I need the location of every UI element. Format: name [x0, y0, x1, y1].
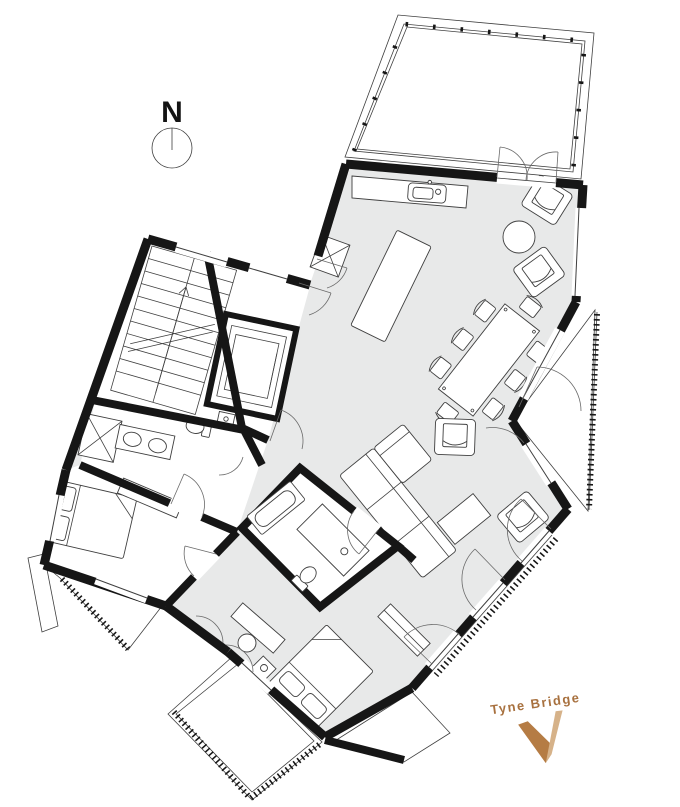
direction-v-icon — [517, 710, 570, 766]
side-table — [503, 221, 535, 253]
annotation-label: Tyne Bridge — [489, 690, 581, 717]
compass-label: N — [161, 96, 183, 129]
armchair — [434, 418, 475, 455]
floor-plan-drawing: N Tyne Bridge — [0, 0, 680, 807]
floor-plan-page: N Tyne Bridge — [0, 0, 680, 807]
terrace-top — [345, 15, 594, 179]
tyne-bridge-annotation: Tyne Bridge — [489, 690, 588, 770]
north-arrow-icon: N — [152, 96, 192, 168]
